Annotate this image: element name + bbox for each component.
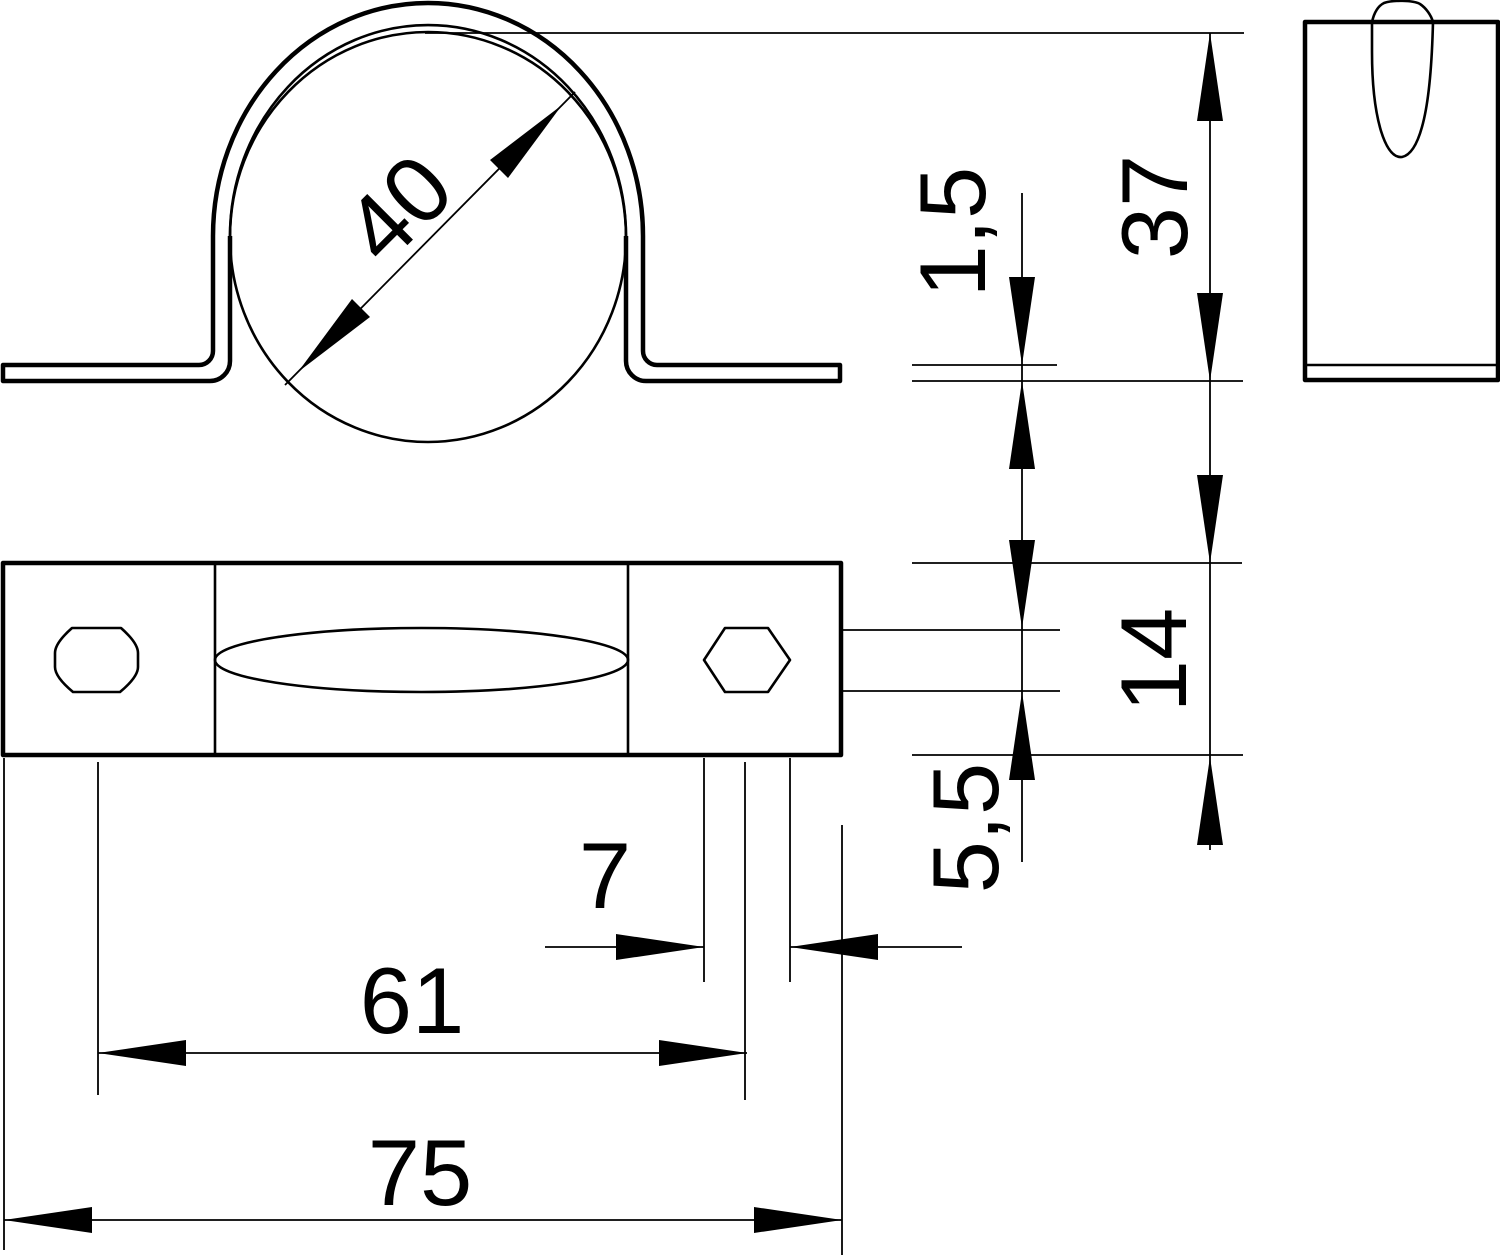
clamp-drawing: 40 1,5 5,5 37 14 [0, 0, 1500, 1255]
dim-7-arrow-left [616, 934, 704, 960]
mounting-hole-left [55, 628, 138, 692]
dim-14-arrow-bottom [1197, 757, 1223, 845]
dim-37-arrow-top [1197, 33, 1223, 121]
dim-40-arrow-lower [298, 299, 370, 372]
dim-clamp-height-label: 37 [1102, 155, 1207, 260]
dim-61-arrow-right [659, 1040, 747, 1066]
plan-view [3, 563, 1243, 755]
dim-strap-width-label: 14 [1101, 608, 1206, 713]
technical-drawing-canvas: 40 1,5 5,5 37 14 [0, 0, 1500, 1255]
dimension-overall-length: 75 [4, 1120, 842, 1233]
dim-hole-length-label: 7 [579, 823, 631, 928]
dimension-height-and-width: 37 14 [1101, 33, 1223, 850]
dim-75-arrow-left [4, 1207, 92, 1233]
dimension-hole-length: 7 [545, 823, 962, 960]
dimension-hole-spacing: 61 [98, 948, 747, 1066]
dim-61-arrow-left [98, 1040, 186, 1066]
dim-14-arrow-top [1197, 475, 1223, 563]
dim-55-arrow-top [1009, 540, 1035, 628]
base-plate-outline [3, 563, 841, 755]
dim-15-arrow-top [1009, 277, 1035, 365]
dim-overall-length-label: 75 [368, 1120, 473, 1225]
dim-75-arrow-right [754, 1207, 842, 1233]
dim-40-arrow-upper [490, 105, 562, 178]
dim-material-thickness-label: 1,5 [900, 167, 1005, 298]
dimension-pipe-diameter: 40 [285, 92, 575, 385]
mounting-hole-right-hex [704, 628, 790, 692]
dim-37-arrow-bottom [1197, 293, 1223, 381]
dimension-thickness-and-hole-width: 1,5 5,5 [900, 167, 1035, 894]
dim-15-arrow-bottom [1009, 381, 1035, 469]
dim-pipe-diameter-label: 40 [324, 134, 472, 282]
side-profile-outline [1305, 22, 1498, 380]
clamp-right-foot-outline [626, 236, 840, 381]
dim-hole-spacing-label: 61 [360, 948, 465, 1053]
side-view [1305, 1, 1498, 380]
tongue-cutout [1372, 1, 1433, 157]
dim-hole-width-label: 5,5 [913, 763, 1018, 894]
center-slot [215, 628, 628, 692]
dim-7-arrow-right [790, 934, 878, 960]
clamp-left-foot-outline [3, 236, 230, 381]
